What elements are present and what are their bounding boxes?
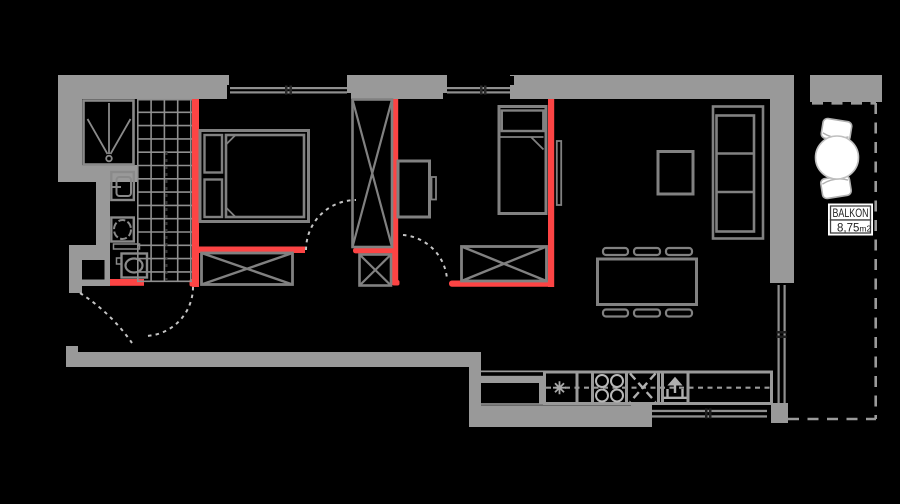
svg-text:BALKON: BALKON xyxy=(833,206,869,220)
svg-text:8,75m2: 8,75m2 xyxy=(837,223,871,235)
